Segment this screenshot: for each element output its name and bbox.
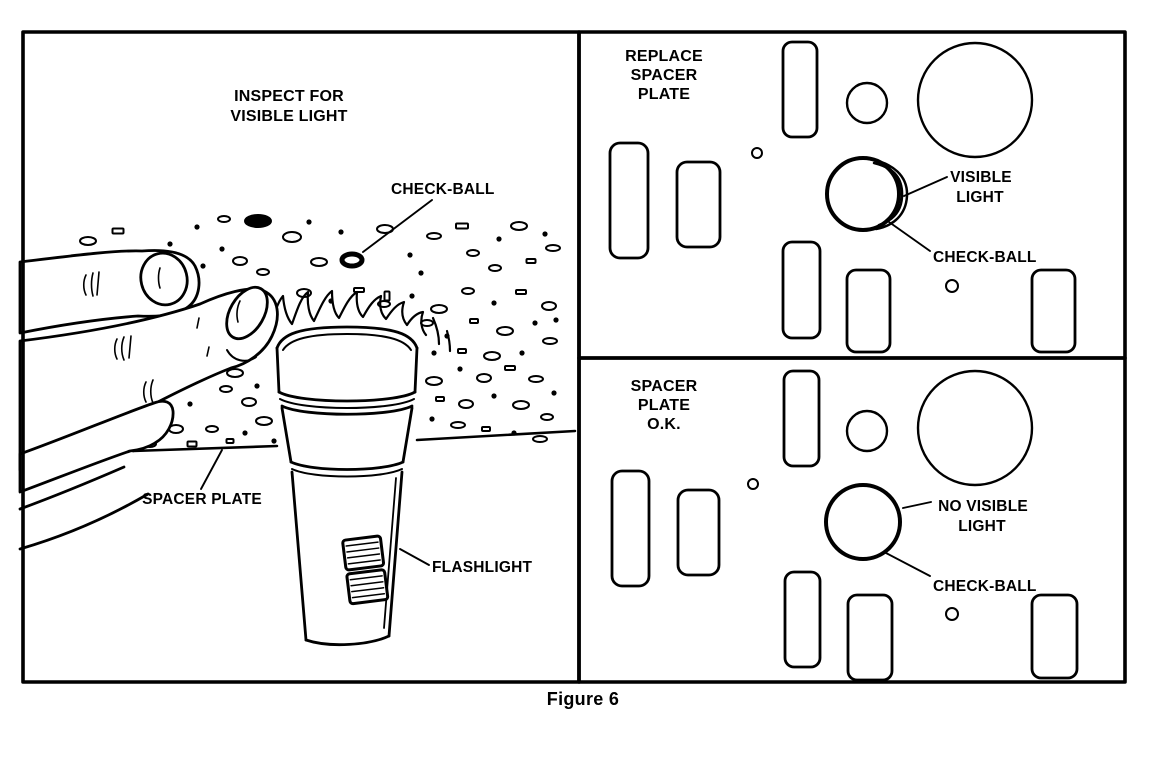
plate-slot — [783, 242, 820, 338]
ok-panel-art — [612, 371, 1077, 680]
plate-hole — [242, 398, 256, 406]
plate-slot — [785, 572, 820, 667]
replace-title-line2: SPACER — [631, 67, 698, 84]
plate-hole — [456, 224, 468, 229]
check-ball-label: CHECK-BALL — [391, 181, 495, 198]
plate-hole — [513, 401, 529, 409]
check-ball-circle — [826, 485, 900, 559]
plate-hole — [385, 292, 390, 301]
plate-hole — [194, 224, 199, 229]
plate-slot — [783, 42, 817, 137]
plate-hole — [551, 390, 556, 395]
visible-light-label-line2: LIGHT — [956, 189, 1004, 206]
plate-hole — [546, 245, 560, 251]
plate-hole — [511, 430, 516, 435]
leader-lines — [886, 502, 931, 576]
plate-hole — [491, 300, 496, 305]
figure-6-diagram: INSPECT FOR VISIBLE LIGHT CHECK-BALL SPA… — [0, 0, 1168, 768]
plate-hole — [553, 317, 558, 322]
plate-hole — [233, 257, 247, 265]
plate-hole — [188, 442, 197, 447]
plate-hole — [505, 366, 515, 370]
replace-title-line1: REPLACE — [625, 48, 703, 65]
plate-hole — [467, 250, 479, 256]
plate-hole — [187, 401, 192, 406]
visible-light-label-line1: VISIBLE — [950, 169, 1012, 186]
plate-hole — [227, 439, 234, 443]
inspect-panel-art — [20, 200, 575, 645]
plate-hole — [482, 427, 490, 431]
check-ball-label: CHECK-BALL — [933, 249, 1037, 266]
plate-hole-large — [918, 43, 1032, 157]
flashlight-label: FLASHLIGHT — [432, 559, 532, 576]
plate-hole — [338, 229, 343, 234]
plate-hole — [431, 305, 447, 313]
inspect-title-line2: VISIBLE LIGHT — [230, 108, 347, 125]
plate-hole — [354, 288, 364, 292]
plate-hole-tiny — [752, 148, 762, 158]
plate-hole — [219, 246, 224, 251]
plate-hole — [516, 290, 526, 294]
plate-hole — [220, 386, 232, 392]
plate-hole — [458, 349, 466, 353]
plate-hole — [462, 288, 474, 294]
plate-hole — [283, 232, 301, 242]
plate-slot — [612, 471, 649, 586]
plate-hole — [491, 393, 496, 398]
plate-hole — [533, 436, 547, 442]
no-visible-light-label-line1: NO VISIBLE — [938, 498, 1028, 515]
plate-hole — [418, 270, 423, 275]
replace-title-line3: PLATE — [638, 86, 690, 103]
plate-hole — [306, 219, 311, 224]
labels: INSPECT FOR VISIBLE LIGHT CHECK-BALL SPA… — [142, 48, 1037, 709]
plate-slot — [784, 371, 819, 466]
plate-hole — [484, 352, 500, 360]
plate-hole-tiny — [946, 608, 958, 620]
no-visible-light-label-line2: LIGHT — [958, 518, 1006, 535]
plate-hole — [532, 320, 537, 325]
plate-hole — [271, 438, 276, 443]
plate-slot — [848, 595, 892, 680]
figure-caption: Figure 6 — [547, 689, 619, 709]
plate-hole — [242, 430, 247, 435]
plate-hole — [245, 215, 271, 227]
plate-hole — [457, 366, 462, 371]
plate-hole — [529, 376, 543, 382]
plate-hole — [470, 319, 478, 323]
plate-hole — [254, 383, 259, 388]
plate-slot — [677, 162, 720, 247]
plate-hole — [497, 327, 513, 335]
check-ball-label: CHECK-BALL — [933, 578, 1037, 595]
plate-hole — [527, 259, 536, 263]
plate-hole — [200, 263, 205, 268]
plate-hole — [427, 233, 441, 239]
plate-hole — [496, 236, 501, 241]
plate-slot — [1032, 595, 1077, 678]
plate-hole — [436, 397, 444, 401]
plate-hole-small — [847, 411, 887, 451]
plate-hole — [113, 229, 124, 234]
plate-hole — [206, 426, 218, 432]
plate-hole — [426, 377, 442, 385]
flashlight — [277, 327, 417, 645]
plate-hole — [421, 320, 433, 326]
plate-hole — [256, 417, 272, 425]
plate-hole — [227, 369, 243, 377]
plate-hole — [311, 258, 327, 266]
spacer-plate-label: SPACER PLATE — [142, 491, 262, 508]
plate-hole — [541, 414, 553, 420]
plate-hole — [257, 269, 269, 275]
plate-hole-tiny — [946, 280, 958, 292]
plate-hole — [489, 265, 501, 271]
plate-slot — [1032, 270, 1075, 352]
ok-title-line1: SPACER — [631, 378, 698, 395]
plate-hole — [429, 416, 434, 421]
plate-slot — [847, 270, 890, 352]
plate-slot — [610, 143, 648, 258]
plate-hole — [80, 237, 96, 245]
plate-hole — [431, 350, 436, 355]
plate-slot — [678, 490, 719, 575]
plate-hole-small — [847, 83, 887, 123]
plate-hole — [167, 241, 172, 246]
check-ball-dot — [342, 254, 362, 266]
plate-hole — [543, 338, 557, 344]
figure-6-page: INSPECT FOR VISIBLE LIGHT CHECK-BALL SPA… — [0, 0, 1168, 768]
plate-hole — [519, 350, 524, 355]
ok-title-line2: PLATE — [638, 397, 690, 414]
plate-hole — [218, 216, 230, 222]
plate-hole — [459, 400, 473, 408]
plate-hole-large — [918, 371, 1032, 485]
plate-hole — [542, 302, 556, 310]
plate-hole — [511, 222, 527, 230]
ok-title-line3: O.K. — [647, 416, 681, 433]
plate-hole — [407, 252, 412, 257]
plate-hole — [477, 374, 491, 382]
plate-hole — [409, 293, 414, 298]
plate-hole-tiny — [748, 479, 758, 489]
inspect-title-line1: INSPECT FOR — [234, 88, 344, 105]
figure-root: INSPECT FOR VISIBLE LIGHT CHECK-BALL SPA… — [20, 32, 1125, 709]
plate-hole — [451, 422, 465, 428]
plate-hole — [542, 231, 547, 236]
